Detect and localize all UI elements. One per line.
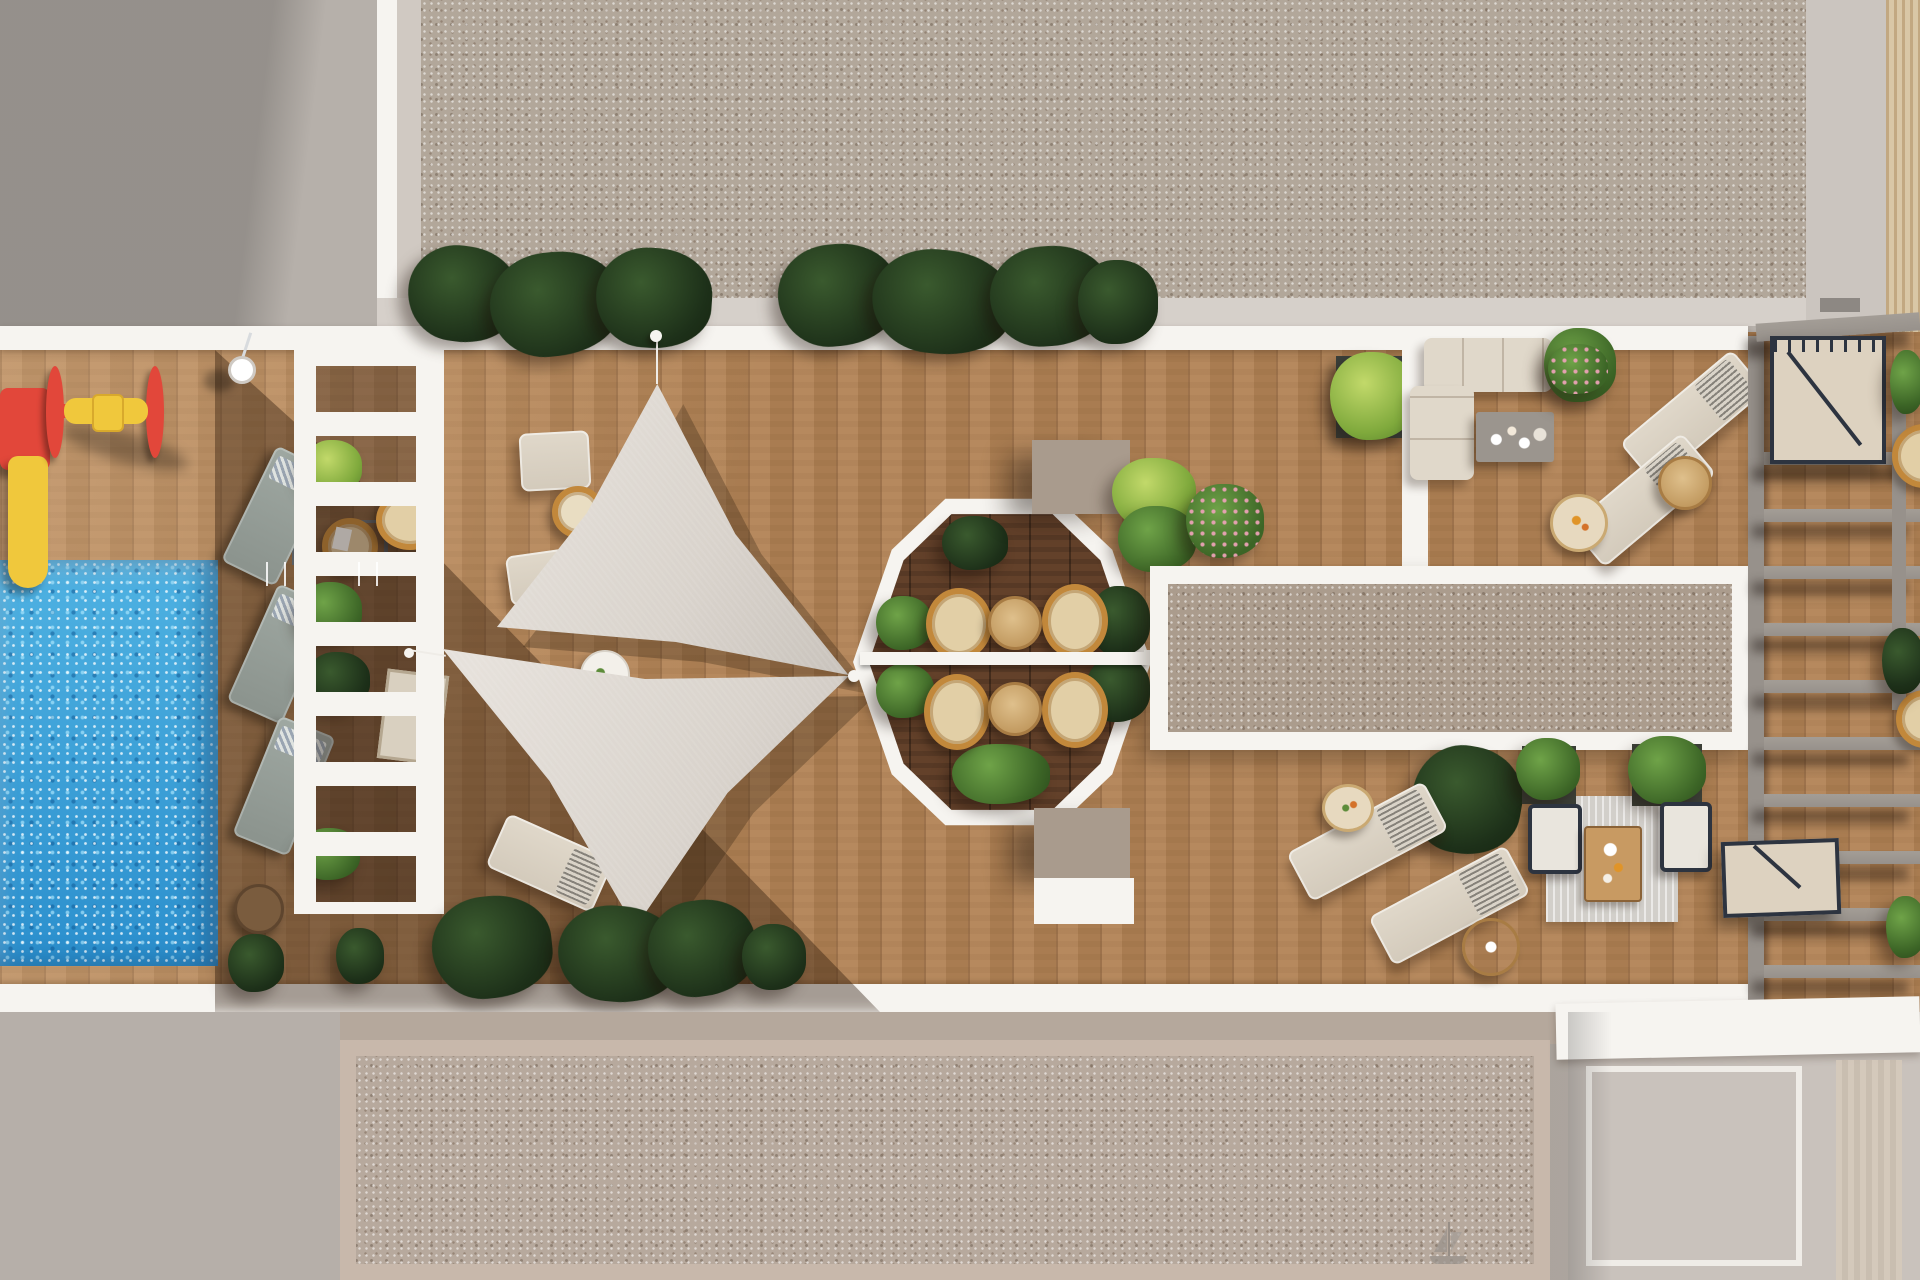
octagon-bush	[952, 744, 1050, 804]
palm	[1118, 506, 1196, 572]
pergola-beam	[1764, 794, 1920, 807]
trellis-rungs	[312, 342, 420, 914]
pool-round-table	[234, 884, 284, 934]
sail-rope	[656, 340, 658, 384]
rooftop-render	[0, 0, 1920, 1280]
dining-table	[988, 596, 1042, 650]
trellis-rail-right	[416, 342, 444, 914]
lounge-wood-table	[1584, 826, 1642, 902]
service-block-landing	[1034, 878, 1134, 924]
lower-terrace-frame	[1586, 1066, 1802, 1266]
deck-chair-white-1	[519, 430, 592, 492]
octagon-bush	[876, 596, 932, 650]
pergola-plant	[1890, 350, 1920, 414]
planter-bush	[1628, 736, 1706, 804]
ladder-reflection	[284, 562, 286, 586]
boat-hull	[1430, 1256, 1466, 1264]
roof-step	[1820, 298, 1860, 312]
dining-table	[988, 682, 1042, 736]
pergola-beam	[1764, 965, 1920, 978]
dining-chair	[926, 588, 992, 660]
service-block-bottom	[1034, 808, 1130, 878]
lounge-armchair-left	[1528, 804, 1582, 874]
deck-lamp	[228, 356, 256, 384]
lounge-armchair-right	[1660, 802, 1712, 872]
boat-sail-left	[1434, 1228, 1447, 1252]
ladder-reflection	[358, 562, 360, 586]
dining-chair	[1042, 584, 1108, 658]
neighbor-wood-strip	[1886, 0, 1920, 332]
ladder-reflection	[266, 562, 268, 586]
walkway-top-vertical-edge	[397, 0, 421, 300]
sailboat-motif	[1428, 1222, 1472, 1268]
lower-terrace-shade	[1568, 1012, 1612, 1280]
lounger-side-table	[1658, 456, 1712, 510]
breakfast-table	[1550, 494, 1608, 552]
sail-anchor	[404, 648, 414, 658]
sail-anchor	[650, 330, 662, 342]
plaza-top-left-shadow	[0, 0, 402, 328]
dining-chair	[924, 674, 990, 750]
pergola-beam	[1764, 737, 1920, 750]
pergola-plant	[1886, 896, 1920, 958]
planter-bush	[1516, 738, 1580, 800]
pergola-plant	[1882, 628, 1920, 694]
corner-sofa-seat-v	[1410, 386, 1474, 480]
octagon-rail	[860, 652, 1146, 665]
boat-sail-right	[1451, 1232, 1462, 1252]
playground-slide	[8, 456, 48, 588]
lounge-coffee-table	[1476, 412, 1554, 462]
spinner-disc-left	[46, 366, 64, 458]
corner-sofa-seat-h	[1424, 338, 1552, 392]
boat-mast	[1448, 1222, 1450, 1256]
south-gravel-roof	[340, 1040, 1550, 1280]
swimming-pool	[0, 560, 218, 966]
flowering-bush	[1186, 484, 1264, 558]
lower-terrace-decking	[1836, 1060, 1902, 1280]
ladder-reflection	[376, 562, 378, 586]
plant	[336, 928, 384, 984]
flowering-bush	[1548, 344, 1608, 394]
spinner-hub	[92, 394, 124, 432]
walkway-top-vertical	[377, 0, 397, 300]
gravel-island	[1168, 584, 1732, 732]
plant-row-bottom	[742, 924, 806, 990]
plant-row	[1078, 260, 1158, 344]
dining-chair	[1042, 672, 1108, 748]
lounger-side-table	[1462, 918, 1520, 976]
spinner-disc-right	[146, 366, 164, 458]
stair-hatch-bottom	[1721, 838, 1842, 918]
octagon-bush	[942, 516, 1008, 570]
plant	[228, 934, 284, 992]
snack-table	[1322, 784, 1374, 832]
